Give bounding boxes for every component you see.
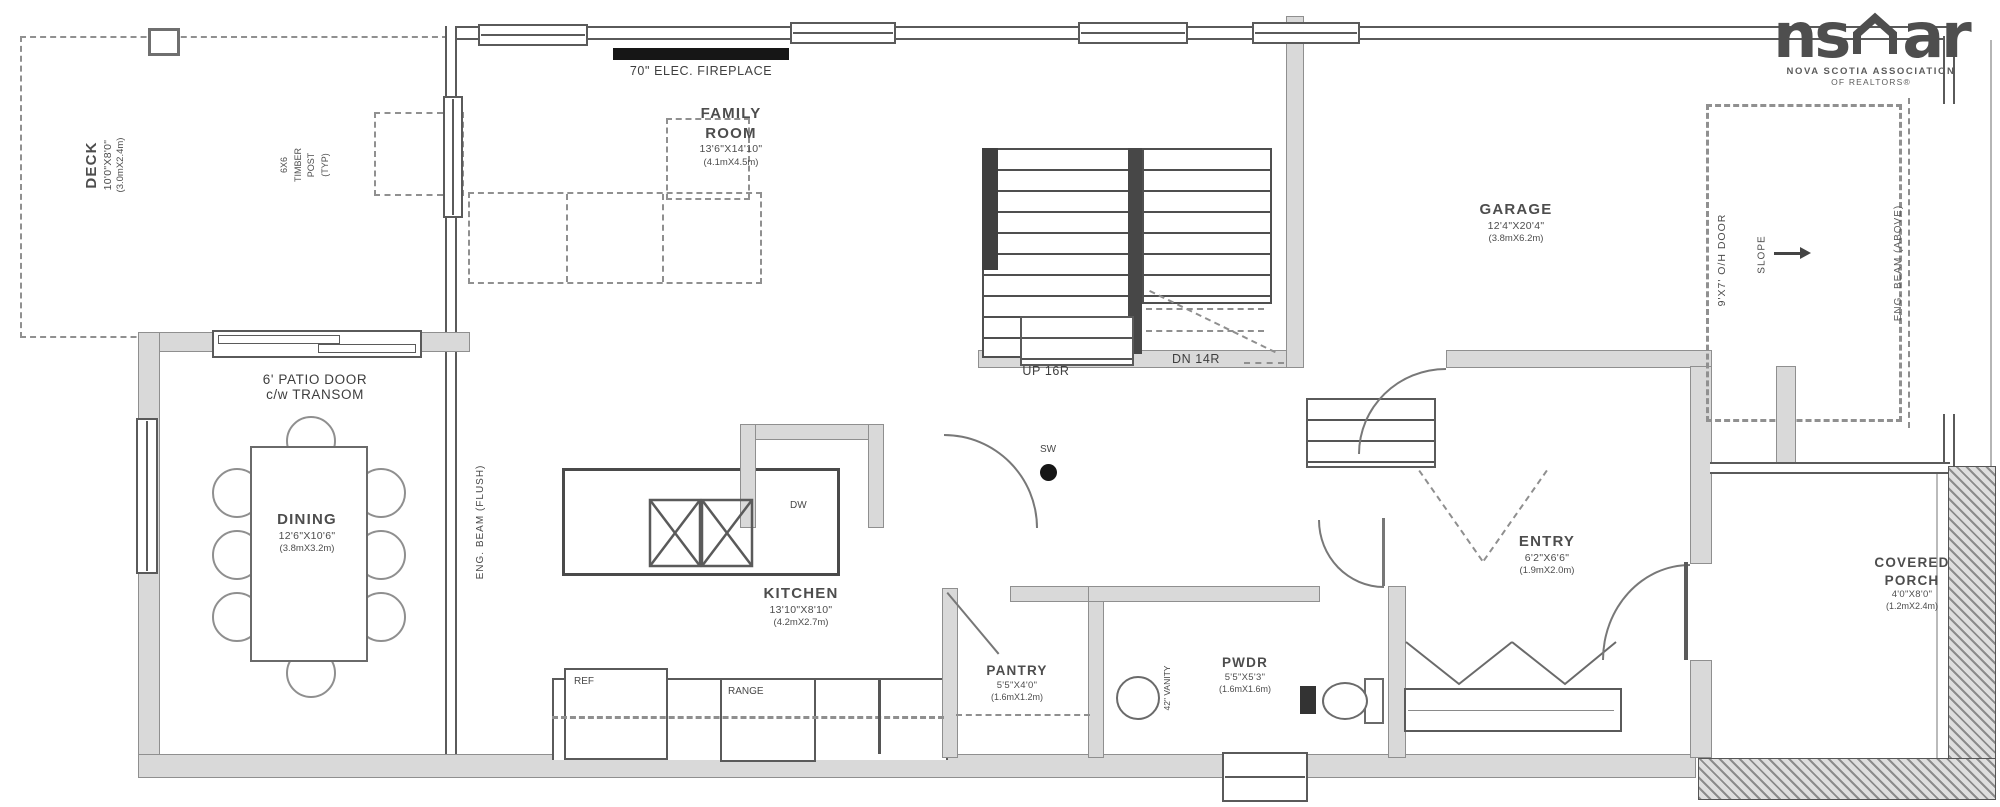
pantry-dims: 5'5"X4'0" bbox=[950, 680, 1084, 692]
room-label-family: FAMILY ROOM 13'6"X14'10" (4.1mX4.5m) bbox=[656, 104, 806, 169]
beam-above-text: ENG. BEAM (ABOVE) bbox=[1893, 205, 1904, 321]
wall-beam-flush bbox=[445, 350, 457, 762]
wall-top bbox=[445, 26, 1955, 40]
front-door-arc bbox=[1602, 564, 1690, 660]
logo-ar: ar bbox=[1902, 10, 1968, 63]
wall-mid-2 bbox=[1446, 350, 1712, 368]
closet-bifold-doors bbox=[1404, 636, 1618, 688]
patio-label-2: c/w TRANSOM bbox=[232, 387, 398, 402]
stairs-dn-label: DN 14R bbox=[1150, 352, 1242, 366]
family-dims: 13'6"X14'10" bbox=[656, 143, 806, 157]
room-label-kitchen: KITCHEN 13'10"X8'10" (4.2mX2.7m) bbox=[726, 584, 876, 629]
sink-round-icon bbox=[1116, 676, 1160, 720]
range-label: RANGE bbox=[728, 686, 764, 697]
overhead-door-text: 9'X7' O/H DOOR bbox=[1716, 214, 1728, 307]
dining-dims: 12'6"X10'6" bbox=[250, 530, 364, 544]
garage-metric: (3.8mX6.2m) bbox=[1448, 233, 1584, 245]
kitchen-name: KITCHEN bbox=[726, 584, 876, 604]
site-edge-line bbox=[1990, 40, 1992, 470]
wall-closet-top bbox=[740, 424, 884, 440]
family-name-1: FAMILY bbox=[656, 104, 806, 124]
pwdr-metric: (1.6mX1.6m) bbox=[1180, 684, 1310, 696]
porch-inner-line bbox=[1936, 474, 1938, 758]
porch-metric: (1.2mX2.4m) bbox=[1846, 601, 1978, 613]
pantry-shelf-line bbox=[956, 714, 1090, 716]
fridge-label: REF bbox=[574, 676, 594, 687]
door-arc-pwdr bbox=[1318, 520, 1384, 588]
entry-name: ENTRY bbox=[1482, 532, 1612, 552]
porch-name-1: COVERED bbox=[1846, 554, 1978, 572]
deck-note-l4: (TYP) bbox=[319, 153, 333, 177]
stairs-down-dashed bbox=[1146, 308, 1264, 310]
stairs-up-label: UP 16R bbox=[998, 364, 1094, 378]
room-label-garage: GARAGE 12'4"X20'4" (3.8mX6.2m) bbox=[1448, 200, 1584, 245]
wall-porch-top bbox=[1710, 462, 1950, 474]
stairs-dn-dash bbox=[1244, 362, 1284, 364]
entry-metric: (1.9mX2.0m) bbox=[1482, 565, 1612, 577]
landing-steps bbox=[1020, 316, 1134, 366]
wall-pwdr-top bbox=[1088, 586, 1320, 602]
entry-closet bbox=[1404, 688, 1622, 732]
patio-door-panel bbox=[218, 335, 340, 344]
patio-door bbox=[212, 330, 422, 358]
window bbox=[136, 418, 158, 574]
pantry-metric: (1.6mX1.2m) bbox=[950, 692, 1084, 704]
deck-note-l1: 6X6 bbox=[278, 157, 292, 173]
vanity-text: 42" VANITY bbox=[1162, 666, 1172, 711]
logo-subtitle-2: OF REALTORS® bbox=[1831, 77, 1911, 87]
stairs-down-dashed bbox=[1146, 330, 1264, 332]
wall-pantry-top bbox=[1010, 586, 1092, 602]
pwdr-dims: 5'5"X5'3" bbox=[1180, 672, 1310, 684]
overhead-door-label: 9'X7' O/H DOOR bbox=[1714, 140, 1730, 380]
beam-flush-text: ENG. BEAM (FLUSH) bbox=[475, 465, 486, 580]
logo-ns: ns bbox=[1773, 10, 1848, 63]
room-label-porch: COVERED PORCH 4'0"X8'0" (1.2mX2.4m) bbox=[1846, 554, 1978, 613]
window bbox=[790, 22, 896, 44]
garage-name: GARAGE bbox=[1448, 200, 1584, 220]
door-arc-garage bbox=[1358, 368, 1446, 454]
dining-name: DINING bbox=[250, 510, 364, 530]
deck-name: DECK bbox=[82, 141, 102, 188]
patio-door-panel bbox=[318, 344, 416, 353]
wall-bottom-2 bbox=[1304, 754, 1696, 778]
family-name-2: ROOM bbox=[656, 124, 806, 144]
deck-dims: 10'0"X8'0" bbox=[102, 140, 116, 191]
stairs-down bbox=[1142, 148, 1272, 304]
logo-subtitle: NOVA SCOTIA ASSOCIATION bbox=[1787, 66, 1956, 77]
room-label-dining: DINING 12'6"X10'6" (3.8mX3.2m) bbox=[250, 510, 364, 555]
room-label-pwdr: PWDR 5'5"X5'3" (1.6mX1.6m) bbox=[1180, 654, 1310, 696]
vanity-label: 42" VANITY bbox=[1161, 643, 1173, 733]
stairs-wall bbox=[982, 148, 998, 270]
window bbox=[478, 24, 588, 46]
kitchen-dims: 13'10"X8'10" bbox=[726, 604, 876, 618]
kitchen-metric: (4.2mX2.7m) bbox=[726, 617, 876, 629]
deck-metric: (3.0mX2.4m) bbox=[115, 138, 127, 193]
wall-garage-left bbox=[1286, 16, 1304, 368]
deck-note-l3: POST bbox=[305, 153, 319, 178]
pwdr-name: PWDR bbox=[1180, 654, 1310, 672]
sofa-cushion-line bbox=[566, 194, 568, 282]
window bbox=[443, 96, 463, 218]
counter-divider bbox=[878, 680, 881, 754]
nsar-logo-text: ns ar bbox=[1773, 10, 1968, 63]
beam-flush-label: ENG. BEAM (FLUSH) bbox=[472, 407, 488, 637]
closet-rod-line bbox=[1408, 710, 1614, 711]
pantry-name: PANTRY bbox=[950, 662, 1084, 680]
family-metric: (4.1mX4.5m) bbox=[656, 157, 806, 169]
slope-arrow bbox=[1774, 252, 1802, 255]
nsar-logo: ns ar NOVA SCOTIA ASSOCIATION OF REALTOR… bbox=[1750, 10, 1992, 87]
porch-dims: 4'0"X8'0" bbox=[1846, 589, 1978, 601]
deck-note-l2: TIMBER bbox=[292, 148, 306, 182]
entry-dash-1 bbox=[1418, 470, 1483, 561]
deck-note: 6X6 TIMBER POST (TYP) bbox=[260, 110, 350, 220]
room-label-pantry: PANTRY 5'5"X4'0" (1.6mX1.2m) bbox=[950, 662, 1084, 704]
floor-plan: DECK 10'0"X8'0" (3.0mX2.4m) 6X6 TIMBER P… bbox=[0, 0, 2000, 807]
upper-cabinet-line bbox=[552, 716, 944, 719]
room-label-deck: DECK 10'0"X8'0" (3.0mX2.4m) bbox=[60, 90, 150, 240]
overhead-door-outline bbox=[1706, 104, 1902, 422]
pwdr-door-leaf bbox=[1382, 518, 1385, 586]
patio-door-label: 6' PATIO DOOR c/w TRANSOM bbox=[232, 372, 398, 402]
window-basement bbox=[1222, 752, 1308, 802]
room-label-entry: ENTRY 6'2"X6'6" (1.9mX2.0m) bbox=[1482, 532, 1612, 577]
beam-above-line bbox=[1908, 98, 1910, 428]
slope-arrow-head bbox=[1800, 247, 1811, 259]
window bbox=[1252, 22, 1360, 44]
dishwasher-label: DW bbox=[790, 500, 807, 511]
entry-dims: 6'2"X6'6" bbox=[1482, 552, 1612, 566]
slope-text: SLOPE bbox=[1757, 235, 1768, 273]
sofa-cushion-line bbox=[662, 194, 664, 282]
furniture-sofa bbox=[468, 192, 762, 284]
garage-dims: 12'4"X20'4" bbox=[1448, 220, 1584, 234]
switch-label: SW bbox=[1020, 444, 1076, 455]
wall-porch-bottom bbox=[1698, 758, 1996, 800]
wall-entry-right-bottom bbox=[1690, 660, 1712, 758]
patio-label-1: 6' PATIO DOOR bbox=[232, 372, 398, 387]
fireplace-label: 70" ELEC. FIREPLACE bbox=[592, 64, 810, 78]
switch-icon bbox=[1040, 464, 1057, 481]
deck-post bbox=[148, 28, 180, 56]
wall-closet-right bbox=[868, 424, 884, 528]
front-door-leaf bbox=[1684, 562, 1688, 660]
toilet-bowl bbox=[1322, 682, 1368, 720]
sink-icon bbox=[648, 498, 756, 570]
wall-garage-porch-connector bbox=[1776, 366, 1796, 468]
wall-garage-right-bottom bbox=[1943, 414, 1955, 466]
fireplace bbox=[613, 48, 789, 60]
wall-porch-right bbox=[1948, 466, 1996, 798]
home-icon bbox=[1849, 10, 1901, 58]
beam-above-label: ENG. BEAM (ABOVE) bbox=[1891, 143, 1905, 383]
wall-pwdr-left bbox=[1088, 588, 1104, 758]
slope-label: SLOPE bbox=[1756, 221, 1769, 289]
window bbox=[1078, 22, 1188, 44]
porch-name-2: PORCH bbox=[1846, 572, 1978, 590]
dining-metric: (3.8mX3.2m) bbox=[250, 543, 364, 555]
